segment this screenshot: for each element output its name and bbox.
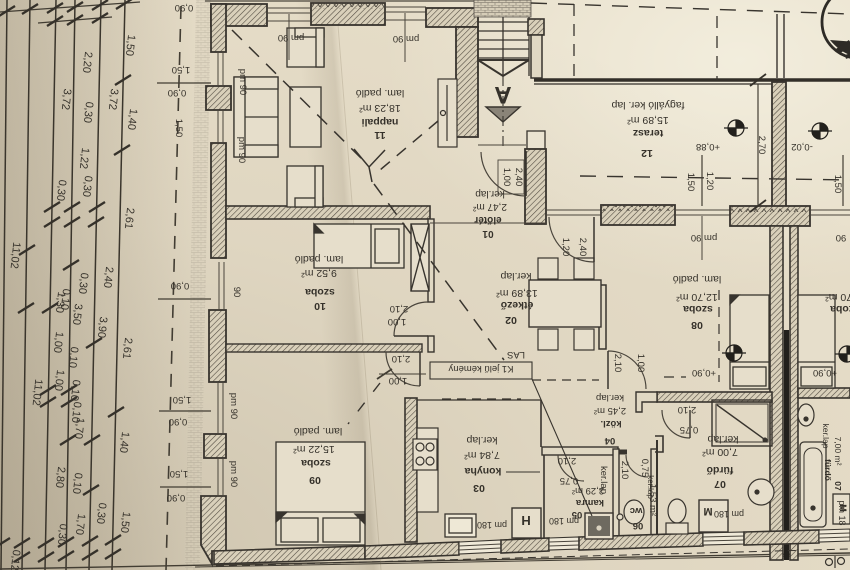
svg-text:pm 90: pm 90	[228, 461, 239, 487]
svg-text:nappali: nappali	[362, 116, 399, 128]
svg-text:fürdő: fürdő	[707, 464, 734, 476]
svg-text:01: 01	[482, 228, 494, 239]
svg-text:0,30: 0,30	[55, 523, 69, 546]
svg-text:2,45 m²: 2,45 m²	[594, 405, 626, 416]
svg-text:2,40: 2,40	[513, 168, 524, 187]
svg-text:7,00 m²: 7,00 m²	[833, 437, 843, 466]
svg-text:2,47 m²: 2,47 m²	[472, 201, 507, 212]
svg-text:fürdő: fürdő	[823, 459, 833, 481]
svg-text:0,30: 0,30	[94, 502, 108, 525]
svg-text:12,70 m²: 12,70 m²	[676, 291, 718, 303]
svg-text:fagyálló ker. lap: fagyálló ker. lap	[611, 99, 684, 111]
svg-text:1,70: 1,70	[73, 513, 87, 536]
svg-text:0,12: 0,12	[8, 549, 22, 570]
svg-text:közl.: közl.	[600, 418, 621, 429]
svg-text:06: 06	[633, 520, 644, 531]
svg-text:3,90: 3,90	[95, 316, 109, 339]
svg-text:0,90: 0,90	[168, 87, 187, 98]
svg-text:lam. padló: lam. padló	[295, 253, 344, 265]
svg-text:pm 90: pm 90	[236, 137, 247, 163]
svg-text:1,40: 1,40	[125, 108, 139, 131]
svg-text:1,50: 1,50	[173, 119, 184, 138]
svg-text:szoba: szoba	[305, 286, 335, 298]
svg-text:pm 180: pm 180	[714, 509, 744, 519]
svg-text:2,10: 2,10	[619, 461, 630, 480]
svg-text:0,90: 0,90	[171, 280, 190, 291]
svg-text:ker.lap: ker.lap	[466, 434, 497, 446]
svg-text:1,00: 1,00	[389, 375, 408, 386]
svg-text:ker.lap: ker.lap	[821, 423, 831, 448]
svg-text:+0,90: +0,90	[813, 367, 837, 378]
svg-text:0,30: 0,30	[54, 179, 68, 202]
svg-text:2,61: 2,61	[122, 207, 136, 230]
svg-text:2,10: 2,10	[558, 455, 577, 466]
svg-text:0,75: 0,75	[680, 424, 699, 435]
svg-text:pm 180: pm 180	[477, 520, 507, 530]
svg-text:09: 09	[309, 474, 321, 486]
svg-text:2,10: 2,10	[392, 353, 411, 364]
svg-text:04: 04	[604, 435, 615, 446]
svg-text:3,50: 3,50	[70, 303, 84, 326]
svg-text:1,00: 1,00	[388, 316, 407, 327]
svg-text:9,52 m²: 9,52 m²	[301, 267, 337, 279]
svg-text:2,40: 2,40	[577, 238, 588, 257]
svg-text:előtér: előtér	[474, 214, 501, 225]
svg-text:lam. padló: lam. padló	[356, 87, 405, 99]
svg-text:LAS: LAS	[507, 349, 525, 360]
svg-text:1,50: 1,50	[170, 468, 189, 479]
svg-text:pm 90: pm 90	[393, 33, 419, 44]
svg-text:0,30: 0,30	[81, 101, 95, 124]
svg-text:K1 jelű kémény: K1 jelű kémény	[448, 363, 513, 374]
svg-text:12,70 m²: 12,70 m²	[825, 291, 850, 303]
svg-text:pm 90: pm 90	[237, 69, 248, 95]
svg-text:-0,02: -0,02	[791, 141, 813, 152]
svg-text:ker.lap: ker.lap	[475, 188, 505, 199]
svg-text:0,10: 0,10	[69, 401, 83, 424]
svg-text:H: H	[521, 513, 530, 528]
svg-text:1,50: 1,50	[685, 173, 696, 192]
svg-text:2,61: 2,61	[120, 337, 134, 360]
svg-text:0,90: 0,90	[167, 492, 186, 503]
svg-text:1,50: 1,50	[172, 64, 191, 75]
svg-text:pm 90: pm 90	[691, 232, 717, 243]
svg-text:1,20: 1,20	[560, 238, 571, 257]
svg-text:2,20: 2,20	[80, 51, 94, 74]
svg-text:07: 07	[714, 478, 726, 490]
svg-text:wc: wc	[630, 505, 644, 516]
svg-text:1,50: 1,50	[173, 394, 192, 405]
svg-text:0,10: 0,10	[70, 472, 84, 495]
svg-text:02: 02	[505, 314, 517, 326]
svg-text:15,22 m²: 15,22 m²	[293, 443, 335, 455]
svg-text:3,72: 3,72	[59, 88, 73, 111]
svg-text:7,84 m²: 7,84 m²	[464, 449, 500, 461]
svg-text:08: 08	[691, 319, 703, 331]
svg-text:07: 07	[833, 481, 843, 491]
svg-text:13,89 m²: 13,89 m²	[496, 287, 538, 299]
svg-text:lam. padló: lam. padló	[673, 273, 722, 285]
svg-text:0,10: 0,10	[66, 346, 80, 369]
svg-text:1,00: 1,00	[52, 369, 66, 392]
svg-text:+0,90: +0,90	[692, 367, 716, 378]
svg-text:11: 11	[374, 129, 385, 141]
svg-text:3,72: 3,72	[106, 88, 120, 111]
svg-text:1,50: 1,50	[832, 175, 843, 194]
svg-text:0,30: 0,30	[76, 272, 90, 295]
svg-text:2,10: 2,10	[390, 303, 409, 314]
svg-text:ker.lap: ker.lap	[646, 475, 655, 499]
svg-text:szoba: szoba	[830, 303, 850, 315]
svg-text:1,22: 1,22	[77, 147, 91, 170]
svg-text:ker.lap: ker.lap	[598, 466, 609, 494]
svg-text:szoba: szoba	[301, 457, 331, 469]
svg-text:szoba: szoba	[683, 303, 713, 315]
svg-text:90: 90	[836, 232, 847, 243]
svg-text:+0,88: +0,88	[696, 141, 720, 152]
svg-text:pm 90: pm 90	[278, 32, 304, 43]
svg-text:1,00: 1,00	[501, 168, 512, 187]
svg-text:0,10: 0,10	[58, 288, 72, 311]
svg-text:2,40: 2,40	[101, 266, 115, 289]
svg-text:2,80: 2,80	[53, 466, 67, 489]
svg-text:1,00: 1,00	[635, 354, 646, 373]
svg-text:03: 03	[473, 482, 485, 494]
svg-text:2,10: 2,10	[678, 404, 697, 415]
svg-text:90: 90	[231, 287, 242, 298]
svg-text:1,00: 1,00	[51, 331, 65, 354]
svg-text:7,00 m²: 7,00 m²	[702, 446, 738, 458]
svg-text:0,30: 0,30	[80, 175, 94, 198]
svg-text:ker.lap: ker.lap	[707, 433, 738, 445]
svg-text:1,50: 1,50	[118, 511, 132, 534]
svg-text:ker.lap: ker.lap	[596, 392, 624, 403]
svg-text:18,23 m²: 18,23 m²	[359, 102, 401, 114]
svg-text:ker.lap: ker.lap	[500, 270, 531, 282]
svg-text:1,20: 1,20	[704, 172, 715, 191]
svg-text:2,70: 2,70	[756, 136, 767, 155]
svg-text:pm 18: pm 18	[837, 500, 847, 525]
svg-text:0,75: 0,75	[560, 475, 579, 486]
svg-text:pm 180: pm 180	[549, 516, 579, 526]
svg-text:0,90: 0,90	[169, 416, 188, 427]
svg-text:lam. padló: lam. padló	[294, 425, 343, 437]
svg-text:0,10: 0,10	[68, 379, 82, 402]
svg-text:kamra: kamra	[575, 497, 604, 508]
svg-text:1,50: 1,50	[123, 34, 137, 57]
svg-text:15,89 m²: 15,89 m²	[627, 114, 669, 126]
svg-text:étkező: étkező	[501, 299, 534, 311]
svg-text:12: 12	[641, 147, 653, 159]
svg-text:1,40: 1,40	[117, 431, 131, 454]
svg-text:M: M	[703, 505, 712, 517]
svg-text:2,10: 2,10	[612, 354, 623, 373]
svg-text:pm 90: pm 90	[228, 393, 239, 419]
svg-text:10: 10	[314, 300, 326, 312]
svg-text:terasz: terasz	[633, 127, 663, 139]
svg-text:konyha: konyha	[464, 465, 501, 477]
svg-text:0,90: 0,90	[175, 2, 194, 13]
